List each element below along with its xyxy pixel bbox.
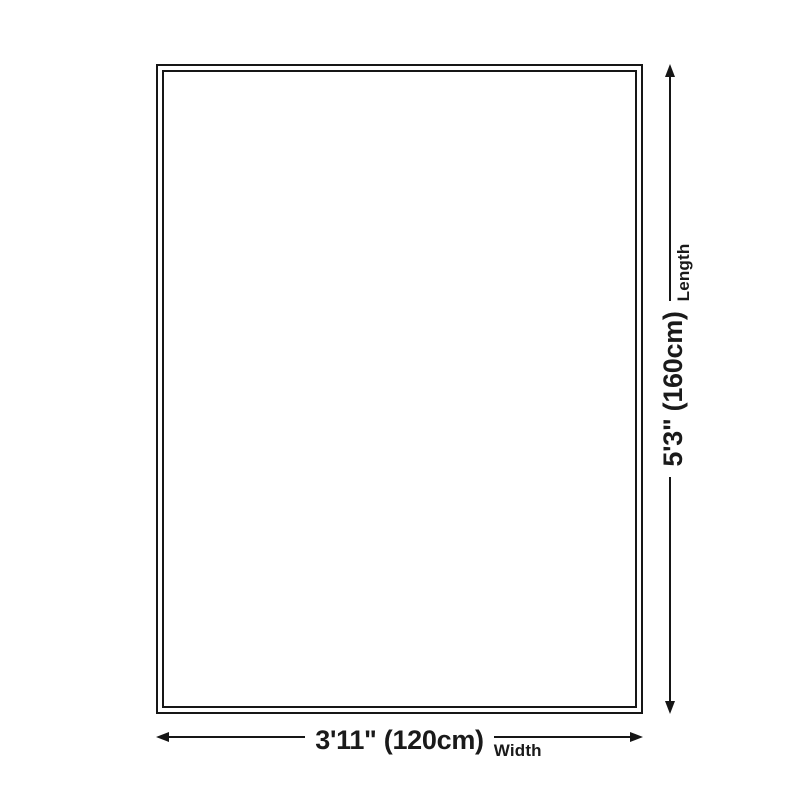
- width-label: Width: [494, 742, 542, 761]
- rug-outline: [156, 64, 643, 714]
- length-label: Length: [675, 244, 694, 302]
- arrow-right-icon: [630, 732, 643, 742]
- length-arrow-line-bottom: [669, 477, 671, 701]
- size-diagram: 3'11" (120cm) Width 5'3" (160cm) Length: [0, 0, 800, 800]
- arrow-left-icon: [156, 732, 169, 742]
- width-value: 3'11" (120cm): [315, 727, 483, 754]
- rug-inner-outline: [162, 70, 637, 708]
- arrow-up-icon: [665, 64, 675, 77]
- width-dimension-arrow: 3'11" (120cm) Width: [156, 730, 643, 744]
- length-value: 5'3" (160cm): [660, 311, 687, 466]
- arrow-down-icon: [665, 701, 675, 714]
- width-arrow-line-right: Width: [494, 736, 630, 738]
- length-arrow-line-top: Length: [669, 77, 671, 301]
- width-arrow-line-left: [169, 736, 305, 738]
- length-dimension-arrow: 5'3" (160cm) Length: [663, 64, 677, 714]
